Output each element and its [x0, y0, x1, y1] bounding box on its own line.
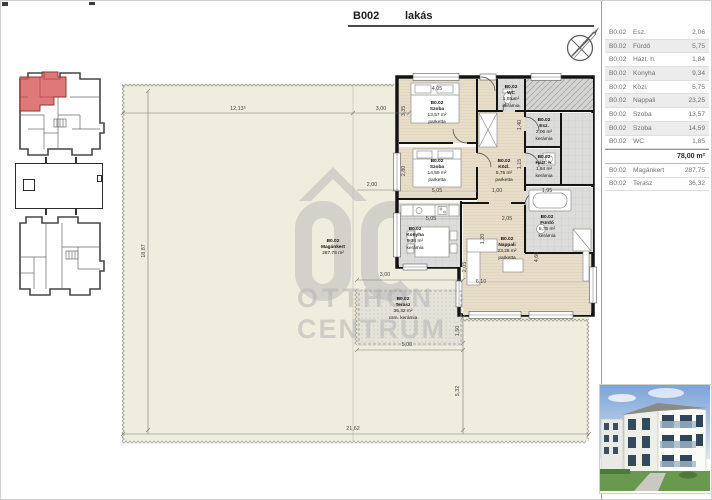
- connector-stub: [75, 157, 77, 163]
- table-cell: Nappali: [633, 97, 673, 104]
- table-row: B0.02Szoba13,57: [605, 108, 709, 122]
- table-cell: Fürdő: [633, 43, 673, 50]
- table-row: B0.02WC1,85: [605, 136, 709, 150]
- table-cell: B0.02: [605, 29, 633, 36]
- table-cell: Szoba: [633, 125, 673, 132]
- table-row: B0.02Szoba14,59: [605, 122, 709, 136]
- table-cell: B0.02: [605, 167, 633, 174]
- table-cell: B0.02: [605, 84, 633, 91]
- table-cell: Magánkert: [633, 167, 673, 174]
- table-cell: B0.02: [605, 125, 633, 132]
- table-cell: B0.02: [605, 56, 633, 63]
- table-cell: Házt. h.: [633, 56, 673, 63]
- table-total-value: 78,00 m²: [677, 153, 709, 160]
- table-cell: 23,25: [673, 97, 709, 104]
- table-cell: 287,75: [673, 167, 709, 174]
- table-cell: Terasz: [633, 180, 673, 187]
- table-cell: 13,57: [673, 111, 709, 118]
- table-cell: B0.02: [605, 43, 633, 50]
- table-row: B0.02Magánkert287,75: [605, 164, 709, 178]
- table-row: B0.02Terasz36,32: [605, 178, 709, 192]
- table-cell: 1,85: [673, 138, 709, 145]
- table-cell: 14,59: [673, 125, 709, 132]
- table-row: B0.02Nappali23,25: [605, 94, 709, 108]
- building-photo: [599, 384, 712, 494]
- table-total-row: 78,00 m²: [605, 149, 709, 164]
- table-row: B0.02Közl.5,75: [605, 81, 709, 95]
- table-cell: 5,75: [673, 84, 709, 91]
- table-cell: B0.02: [605, 180, 633, 187]
- area-table-body: B0.02Esz.2,06B0.02Fürdő5,75B0.02Házt. h.…: [605, 26, 709, 191]
- table-cell: 9,34: [673, 70, 709, 77]
- table-cell: Közl.: [633, 84, 673, 91]
- table-cell: B0.02: [605, 70, 633, 77]
- floorplan-sheet: B002 lakás OTTHON CENTRUM: [0, 0, 712, 500]
- area-table: B0.02Esz.2,06B0.02Fürdő5,75B0.02Házt. h.…: [605, 26, 709, 191]
- table-cell: 5,75: [673, 43, 709, 50]
- table-cell: Esz.: [633, 29, 673, 36]
- mini-plan-upper: [14, 63, 106, 159]
- table-row: B0.02Esz.2,06: [605, 26, 709, 40]
- north-compass-icon: [568, 27, 600, 61]
- table-row: B0.02Házt. h.1,84: [605, 53, 709, 67]
- table-row: B0.02Fürdő5,75: [605, 40, 709, 54]
- table-row: B0.02Konyha9,34: [605, 67, 709, 81]
- mini-plan-lower: [14, 213, 106, 299]
- table-cell: WC: [633, 138, 673, 145]
- table-cell: 1,84: [673, 56, 709, 63]
- site-rect-side-square: [97, 175, 102, 182]
- table-cell: B0.02: [605, 111, 633, 118]
- table-cell: B0.02: [605, 138, 633, 145]
- table-cell: 36,32: [673, 180, 709, 187]
- table-cell: Konyha: [633, 70, 673, 77]
- table-cell: Szoba: [633, 111, 673, 118]
- table-cell: 2,06: [673, 29, 709, 36]
- connector-stub: [45, 157, 47, 163]
- site-rect-inner-square: [23, 179, 35, 191]
- table-cell: B0.02: [605, 97, 633, 104]
